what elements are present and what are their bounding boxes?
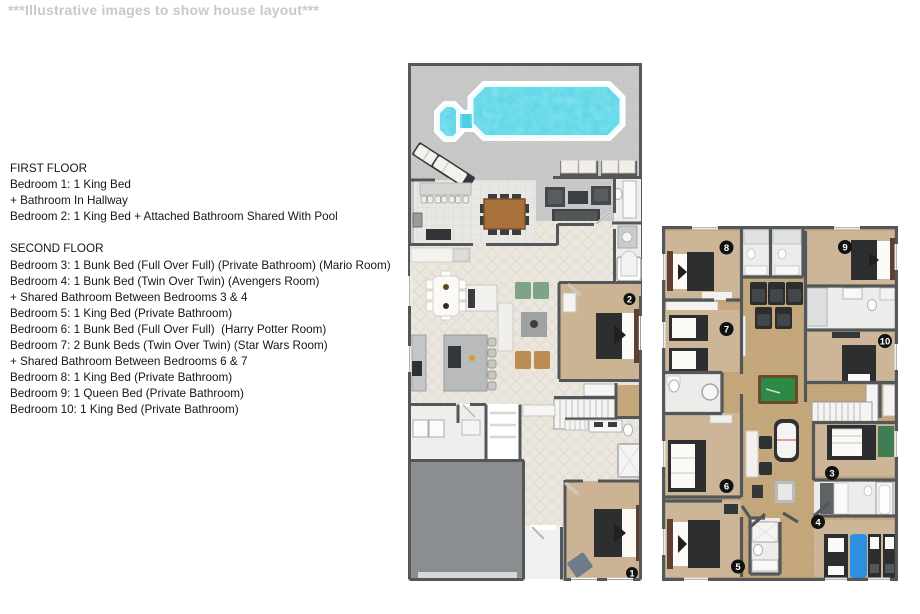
svg-text:6: 6 — [724, 482, 729, 493]
svg-text:5: 5 — [735, 562, 741, 573]
svg-text:2: 2 — [627, 295, 632, 305]
svg-text:7: 7 — [724, 325, 729, 336]
svg-text:9: 9 — [842, 243, 847, 254]
svg-text:10: 10 — [880, 337, 891, 348]
svg-text:3: 3 — [829, 469, 834, 480]
svg-text:1: 1 — [629, 569, 634, 579]
svg-text:4: 4 — [815, 518, 821, 529]
svg-text:8: 8 — [724, 243, 729, 254]
